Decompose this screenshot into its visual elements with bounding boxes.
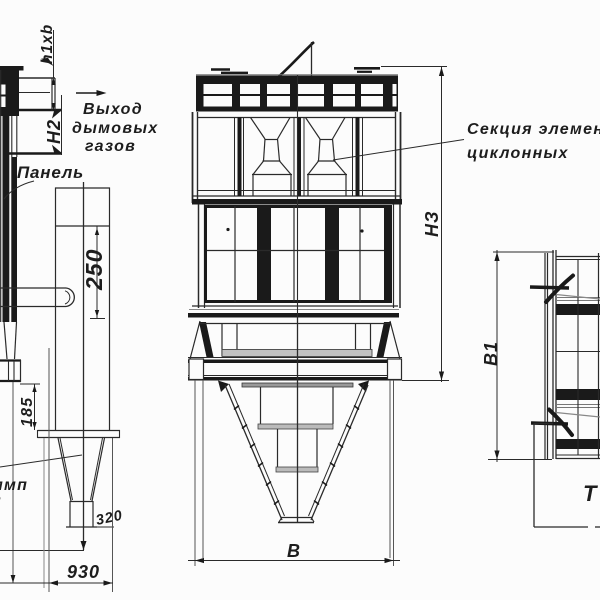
svg-text:H2: H2 — [44, 119, 64, 144]
svg-text:320: 320 — [95, 508, 125, 529]
svg-text:Выход: Выход — [83, 101, 143, 118]
svg-text:930: 930 — [67, 562, 100, 582]
svg-text:НЗ: НЗ — [422, 210, 442, 237]
svg-text:газов: газов — [85, 138, 136, 155]
svg-text:В: В — [287, 541, 301, 561]
svg-text:циклонных: циклонных — [467, 145, 569, 162]
svg-text:Панель: Панель — [17, 163, 84, 182]
svg-text:В1: В1 — [481, 341, 501, 366]
svg-text:185: 185 — [19, 397, 36, 427]
svg-text:ммп: ммп — [0, 477, 28, 494]
svg-text:дымовых: дымовых — [72, 120, 159, 137]
svg-text:h1xb: h1xb — [39, 24, 56, 64]
svg-text:Секция элементов: Секция элементов — [467, 121, 600, 138]
svg-text:п: п — [0, 493, 2, 510]
svg-text:Т: Т — [583, 481, 598, 506]
svg-text:250: 250 — [81, 249, 107, 291]
